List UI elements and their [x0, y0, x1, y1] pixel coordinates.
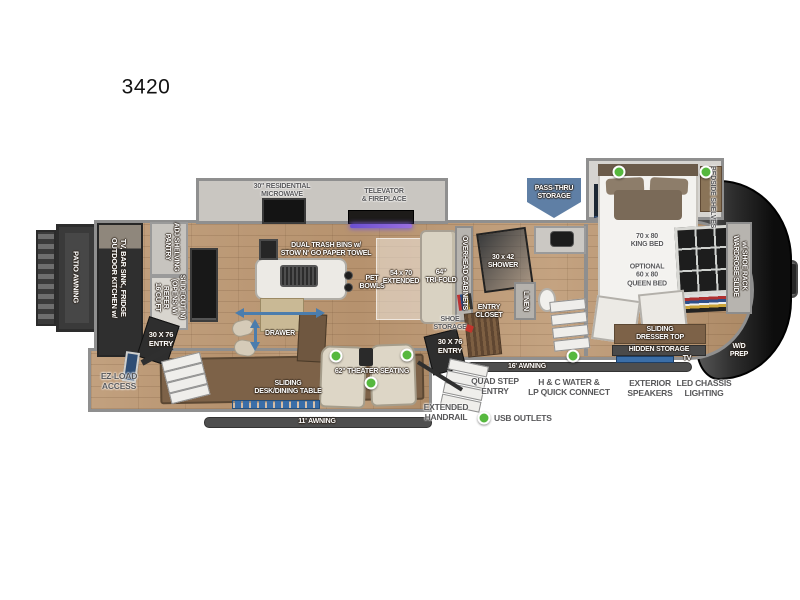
- range-oven: [262, 198, 306, 224]
- hidden-storage-bar: [612, 345, 706, 356]
- entry-closet: [464, 310, 502, 357]
- fireplace-led-glow: [350, 224, 412, 228]
- theater-console: [359, 348, 373, 366]
- bedroom-tv-strip: [616, 356, 674, 363]
- shoe-shelf-items: [457, 293, 473, 311]
- island-drawer-cabinet: [260, 298, 304, 332]
- patio-deck: [56, 224, 98, 332]
- usb-outlet-dot: [365, 377, 378, 390]
- slide-window-bottom: [232, 400, 320, 409]
- floorplan-page: 3420 PATIO AWNING OUTDOOR KITCHEN w/ TV,…: [0, 0, 800, 600]
- page-title: 3420: [122, 76, 171, 101]
- refrigerator: [190, 248, 218, 322]
- patio-awning-slats: [36, 230, 56, 326]
- sofa-extended-footprint: [376, 238, 422, 320]
- usb-outlet-dot: [401, 349, 414, 362]
- sliding-dresser-top: [614, 324, 706, 344]
- linen-closet: [514, 282, 536, 320]
- label-led-chassis: LED CHASSIS LIGHTING: [677, 378, 732, 398]
- pass-thru-banner: [527, 178, 581, 218]
- awning-16-bar: [466, 362, 692, 372]
- label-usb-legend: USB OUTLETS: [494, 413, 552, 423]
- label-exterior-speakers: EXTERIOR SPEAKERS: [627, 378, 672, 398]
- pet-bowl-2: [344, 283, 353, 292]
- tri-fold-sofa: [420, 230, 458, 324]
- pet-bowl-1: [344, 271, 353, 280]
- wardrobe-slide: [726, 222, 752, 314]
- pantry-cabinet: [150, 222, 188, 276]
- usb-outlet-dot: [613, 166, 626, 179]
- fireplace: [348, 210, 414, 224]
- slide-arrow-vertical: [254, 322, 257, 348]
- usb-legend-dot: [478, 412, 491, 425]
- usb-outlet-dot: [330, 350, 343, 363]
- label-water-connect: H & C WATER & LP QUICK CONNECT: [528, 377, 610, 397]
- bedroom-steps: [549, 298, 590, 355]
- bath-sink: [550, 231, 574, 247]
- usb-outlet-dot: [567, 350, 580, 363]
- usb-outlet-dot: [700, 166, 713, 179]
- outdoor-kitchen-panel: [97, 223, 143, 357]
- dual-trash-bins: [259, 239, 278, 260]
- bed-blanket: [614, 190, 682, 220]
- awning-11-bar: [204, 417, 432, 428]
- island-sink-grill: [280, 265, 318, 287]
